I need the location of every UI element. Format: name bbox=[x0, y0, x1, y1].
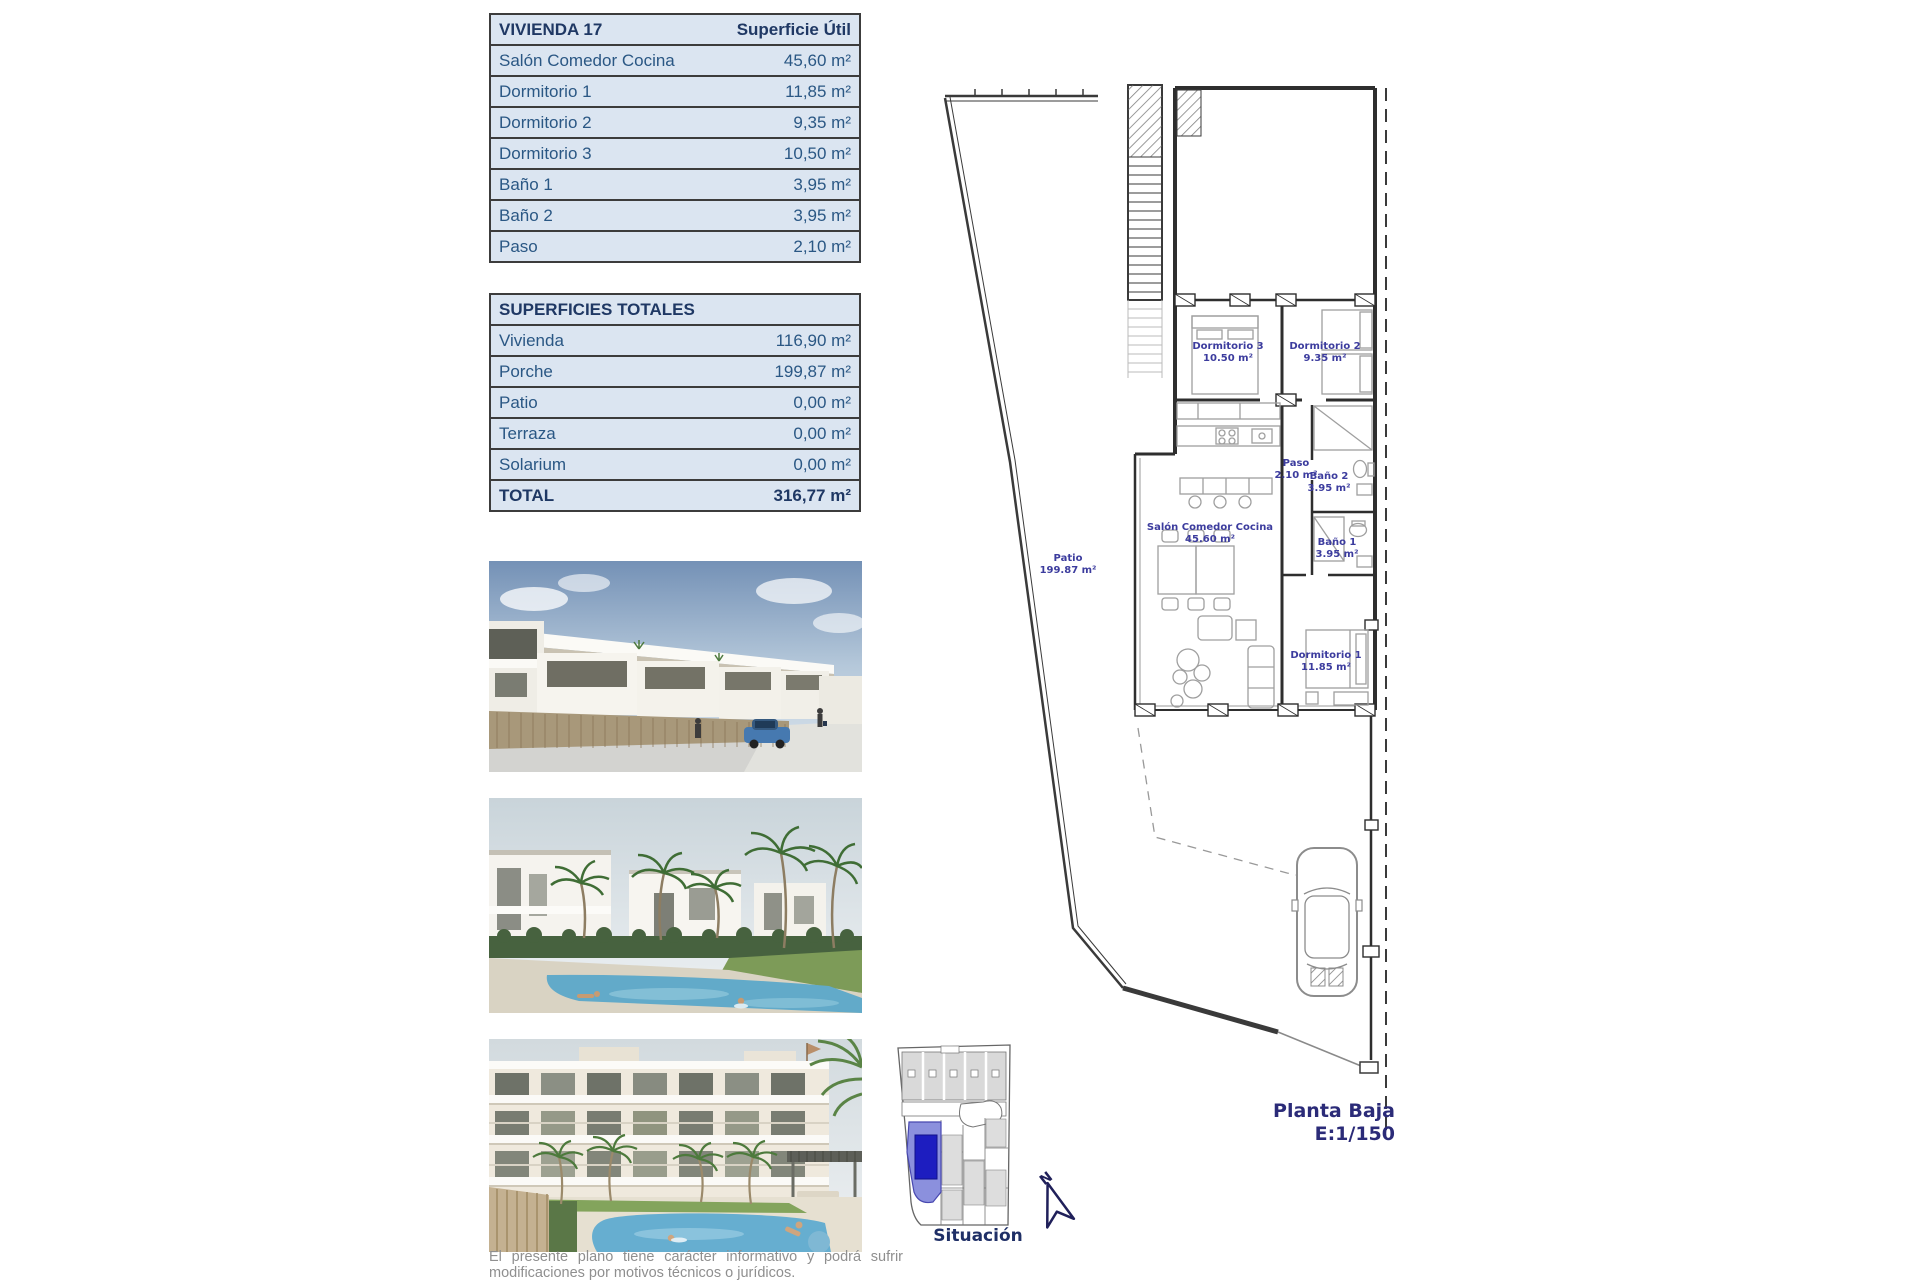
table-row: Baño 23,95 m² bbox=[491, 201, 859, 232]
table-row: Dormitorio 310,50 m² bbox=[491, 139, 859, 170]
room-label-bano-1: Baño 13.95 m² bbox=[1297, 537, 1377, 561]
brochure-page: VIVIENDA 17 Superficie Útil Salón Comedo… bbox=[0, 0, 1920, 1280]
totales-table-header: SUPERFICIES TOTALES bbox=[491, 295, 859, 326]
table-row: Paso2,10 m² bbox=[491, 232, 859, 261]
north-arrow-icon: N bbox=[1033, 1168, 1083, 1230]
disclaimer-text: El presente plano tiene carácter informa… bbox=[489, 1249, 903, 1280]
room-label-bano-2: Baño 23.95 m² bbox=[1289, 471, 1369, 495]
vivienda-title: VIVIENDA 17 bbox=[499, 20, 602, 40]
table-row: Solarium0,00 m² bbox=[491, 450, 859, 481]
vivienda-table-header: VIVIENDA 17 Superficie Útil bbox=[491, 15, 859, 46]
table-row: Dormitorio 111,85 m² bbox=[491, 77, 859, 108]
stairs bbox=[1128, 85, 1162, 378]
room-label-dormitorio-2: Dormitorio 29.35 m² bbox=[1265, 341, 1385, 365]
room-label-patio: Patio199.87 m² bbox=[1008, 553, 1128, 577]
plan-caption: Planta Baja E:1/150 bbox=[1230, 1100, 1395, 1146]
table-row: Vivienda116,90 m² bbox=[491, 326, 859, 357]
floor-plan-drawing bbox=[930, 60, 1410, 1140]
street-render-illustration bbox=[489, 561, 862, 772]
pool-render-illustration bbox=[489, 798, 862, 1013]
room-label-salon: Salón Comedor Cocina45.60 m² bbox=[1130, 522, 1290, 546]
hatched-wall-section bbox=[1177, 90, 1201, 136]
situacion-map bbox=[893, 1040, 1013, 1230]
room-label-dormitorio-1: Dormitorio 111.85 m² bbox=[1266, 650, 1386, 674]
superficies-totales-table: SUPERFICIES TOTALES Vivienda116,90 m² Po… bbox=[489, 293, 861, 512]
table-row: Terraza0,00 m² bbox=[491, 419, 859, 450]
table-row: Patio0,00 m² bbox=[491, 388, 859, 419]
table-row: Porche199,87 m² bbox=[491, 357, 859, 388]
vivienda-table: VIVIENDA 17 Superficie Útil Salón Comedo… bbox=[489, 13, 861, 263]
floor-plan: Dormitorio 310.50 m² Dormitorio 29.35 m²… bbox=[930, 60, 1410, 1140]
north-letter: N bbox=[1037, 1169, 1056, 1189]
plan-caption-scale: E:1/150 bbox=[1230, 1123, 1395, 1146]
plan-caption-title: Planta Baja bbox=[1230, 1100, 1395, 1123]
superficie-util-header: Superficie Útil bbox=[737, 20, 851, 40]
render-photo-apartments bbox=[489, 1039, 862, 1252]
table-row: Baño 13,95 m² bbox=[491, 170, 859, 201]
table-row: Dormitorio 29,35 m² bbox=[491, 108, 859, 139]
table-row: Salón Comedor Cocina45,60 m² bbox=[491, 46, 859, 77]
render-photo-street bbox=[489, 561, 862, 772]
apartments-render-illustration bbox=[489, 1039, 862, 1252]
totales-title: SUPERFICIES TOTALES bbox=[499, 300, 695, 320]
furniture bbox=[1158, 310, 1374, 708]
situacion-map-drawing bbox=[893, 1040, 1013, 1230]
car-top-view-icon bbox=[1292, 848, 1362, 996]
total-row: TOTAL316,77 m² bbox=[491, 481, 859, 510]
render-photo-pool bbox=[489, 798, 862, 1013]
